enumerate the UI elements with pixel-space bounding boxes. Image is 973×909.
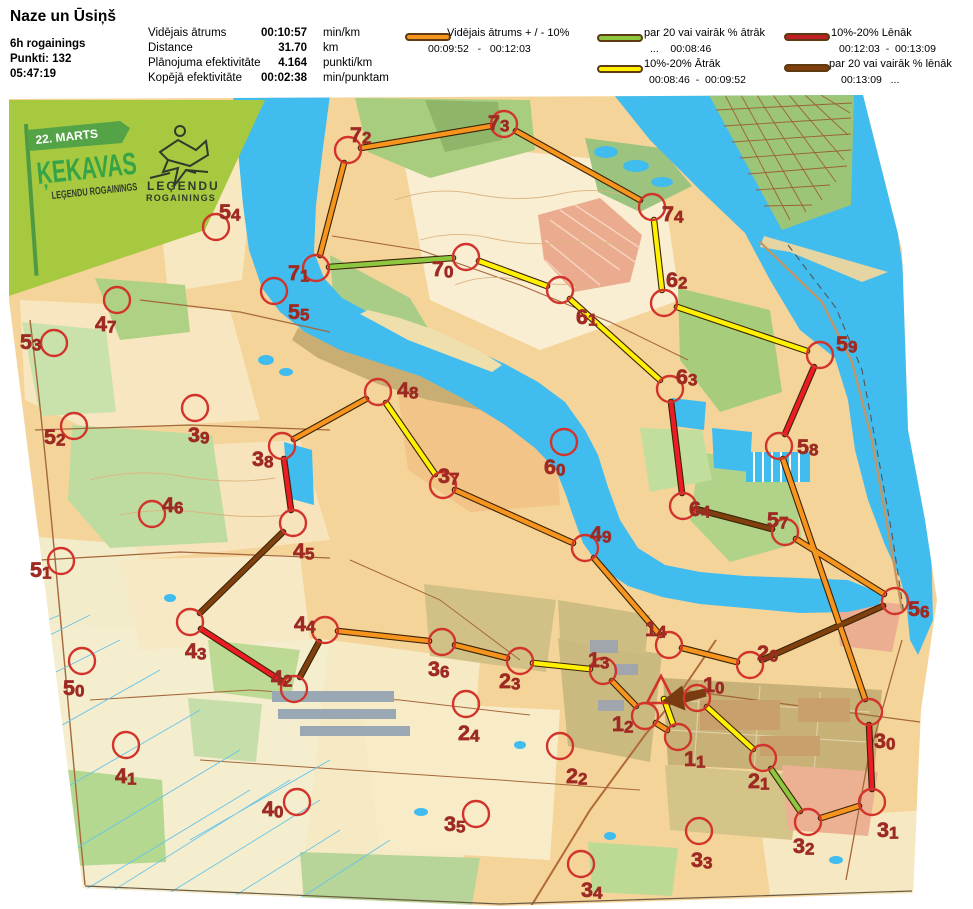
svg-text:ROGAININGS: ROGAININGS [146,193,216,203]
svg-text:LEĢENDU: LEĢENDU [147,179,220,193]
